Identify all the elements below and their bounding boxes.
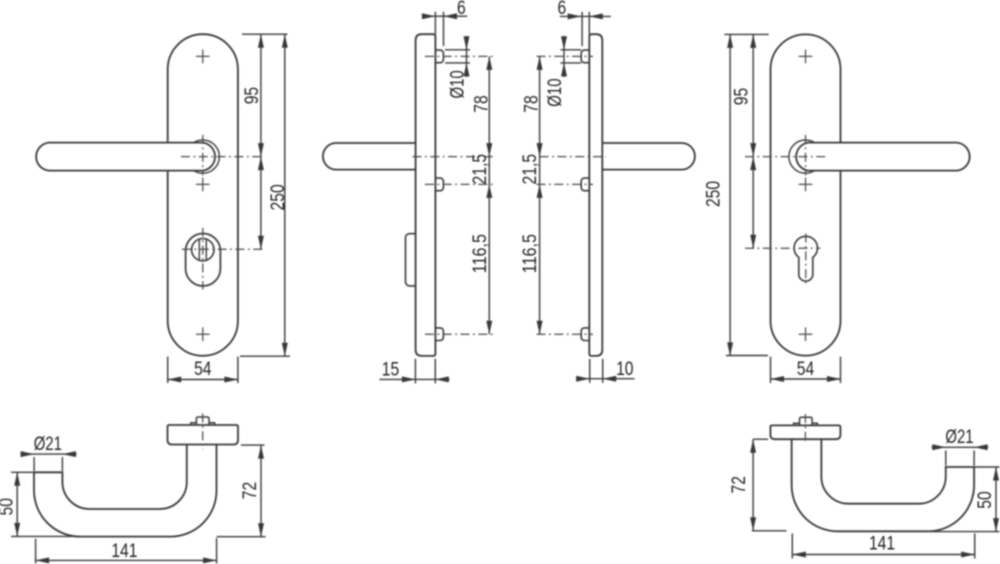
svg-text:78: 78: [471, 95, 492, 112]
svg-text:Ø21: Ø21: [945, 427, 973, 448]
svg-text:95: 95: [242, 87, 263, 104]
svg-text:54: 54: [194, 359, 212, 380]
svg-text:72: 72: [729, 476, 750, 493]
svg-text:50: 50: [975, 491, 996, 508]
svg-text:10: 10: [616, 359, 633, 380]
svg-text:Ø21: Ø21: [34, 434, 62, 455]
svg-text:54: 54: [797, 359, 815, 380]
svg-text:6: 6: [457, 0, 466, 19]
svg-text:6: 6: [558, 0, 567, 19]
svg-text:116,5: 116,5: [470, 234, 491, 273]
svg-text:50: 50: [0, 498, 18, 515]
svg-text:78: 78: [522, 95, 543, 112]
svg-text:15: 15: [382, 360, 399, 381]
svg-text:250: 250: [704, 181, 725, 207]
svg-text:72: 72: [240, 482, 261, 499]
svg-text:21,5: 21,5: [470, 154, 491, 185]
svg-text:21,5: 21,5: [520, 154, 541, 185]
svg-text:Ø10: Ø10: [545, 79, 566, 107]
svg-text:250: 250: [268, 184, 289, 210]
svg-text:Ø10: Ø10: [448, 70, 469, 98]
svg-text:116,5: 116,5: [520, 234, 541, 273]
svg-text:141: 141: [111, 541, 137, 562]
svg-text:141: 141: [869, 533, 895, 554]
svg-text:95: 95: [732, 88, 753, 105]
